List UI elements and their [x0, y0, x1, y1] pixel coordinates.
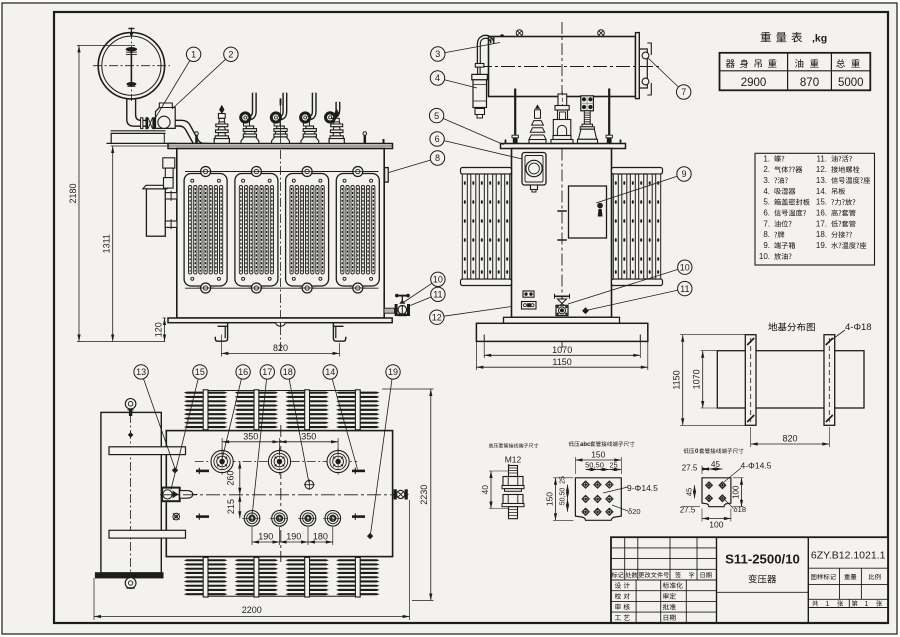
svg-text:100: 100	[731, 485, 740, 499]
svg-text:17.: 17.	[816, 219, 827, 228]
svg-text:19: 19	[388, 367, 398, 377]
svg-text:15: 15	[195, 367, 205, 377]
svg-text:7.: 7.	[763, 219, 770, 228]
svg-text:260: 260	[226, 471, 236, 486]
svg-text:1150: 1150	[672, 370, 682, 389]
svg-text:abc: abc	[580, 442, 591, 448]
svg-text:820: 820	[273, 343, 288, 353]
svg-text:190: 190	[286, 532, 301, 542]
svg-text:6: 6	[435, 134, 440, 144]
svg-text:350: 350	[243, 431, 258, 441]
svg-text:150: 150	[591, 450, 605, 460]
svg-text:S11-2500/10: S11-2500/10	[725, 552, 800, 567]
svg-text:180: 180	[313, 532, 328, 542]
svg-text:10: 10	[433, 275, 443, 285]
svg-text:7: 7	[681, 87, 686, 97]
svg-text:1: 1	[826, 601, 830, 608]
svg-text:12.: 12.	[816, 165, 827, 174]
svg-text:M12: M12	[505, 455, 522, 465]
svg-text:2200: 2200	[242, 605, 262, 615]
svg-text:5000: 5000	[838, 77, 864, 89]
svg-text:14.: 14.	[816, 187, 827, 196]
svg-text:5: 5	[434, 111, 439, 121]
svg-text:1.: 1.	[763, 154, 770, 163]
svg-text:3: 3	[435, 49, 440, 59]
svg-text:18: 18	[283, 367, 293, 377]
svg-text:δ20: δ20	[628, 507, 641, 516]
svg-text:16.: 16.	[816, 209, 827, 218]
svg-text:27.5: 27.5	[680, 506, 696, 515]
svg-text:12: 12	[432, 312, 442, 322]
svg-text:1: 1	[191, 50, 196, 60]
svg-text:2230: 2230	[419, 485, 429, 505]
svg-text:,kg: ,kg	[812, 33, 827, 45]
svg-text:1311: 1311	[102, 234, 112, 253]
svg-text:820: 820	[782, 434, 797, 444]
svg-text:5.: 5.	[763, 198, 770, 207]
svg-text:50,50: 50,50	[560, 488, 567, 506]
svg-text:350: 350	[301, 431, 316, 441]
svg-text:1150: 1150	[552, 357, 571, 367]
svg-text:2900: 2900	[741, 77, 767, 89]
svg-text:19.: 19.	[816, 241, 827, 250]
svg-text:10.: 10.	[759, 252, 770, 261]
svg-text:40: 40	[480, 485, 490, 495]
svg-text:11: 11	[680, 284, 689, 294]
svg-text:17: 17	[262, 367, 272, 377]
svg-text:215: 215	[226, 499, 236, 514]
svg-text:870: 870	[800, 77, 819, 89]
svg-text:16: 16	[238, 367, 248, 377]
svg-text:190: 190	[258, 532, 273, 542]
svg-text:150: 150	[544, 492, 554, 506]
svg-text:11.: 11.	[816, 154, 827, 163]
svg-text:50,50: 50,50	[585, 460, 604, 469]
svg-text:45: 45	[711, 460, 720, 469]
svg-text:27.5: 27.5	[682, 464, 698, 473]
svg-text:9.: 9.	[763, 241, 770, 250]
svg-text:45: 45	[685, 488, 694, 496]
svg-text:4-Φ18: 4-Φ18	[845, 322, 872, 333]
svg-text:1: 1	[865, 601, 869, 608]
svg-text:4-Φ14.5: 4-Φ14.5	[741, 461, 772, 471]
svg-text:2.: 2.	[763, 165, 770, 174]
svg-text:100: 100	[709, 520, 723, 530]
svg-text:13.: 13.	[816, 176, 827, 185]
svg-text:1070: 1070	[552, 345, 572, 355]
svg-text:9-Φ14.5: 9-Φ14.5	[627, 483, 658, 493]
svg-text:8: 8	[435, 153, 440, 163]
svg-text:6ZY.B12.1021.1: 6ZY.B12.1021.1	[811, 550, 886, 562]
svg-text:3.: 3.	[763, 176, 770, 185]
svg-text:13: 13	[136, 367, 146, 377]
svg-text:2: 2	[228, 50, 233, 60]
svg-text:2180: 2180	[68, 183, 78, 203]
svg-text:18.: 18.	[816, 230, 827, 239]
svg-text:1070: 1070	[692, 369, 702, 389]
svg-text:4: 4	[435, 73, 440, 83]
svg-text:9: 9	[681, 169, 686, 179]
svg-text:120: 120	[154, 322, 164, 337]
svg-text:15.: 15.	[816, 198, 827, 207]
svg-text:δ18: δ18	[734, 505, 747, 514]
svg-text:8.: 8.	[763, 230, 770, 239]
svg-text:6.: 6.	[763, 209, 770, 218]
svg-text:25: 25	[609, 460, 617, 469]
svg-text:10: 10	[680, 262, 690, 272]
svg-text:4.: 4.	[763, 187, 770, 196]
svg-text:25: 25	[560, 476, 567, 484]
svg-text:11: 11	[433, 290, 442, 300]
svg-text:14: 14	[325, 367, 335, 377]
